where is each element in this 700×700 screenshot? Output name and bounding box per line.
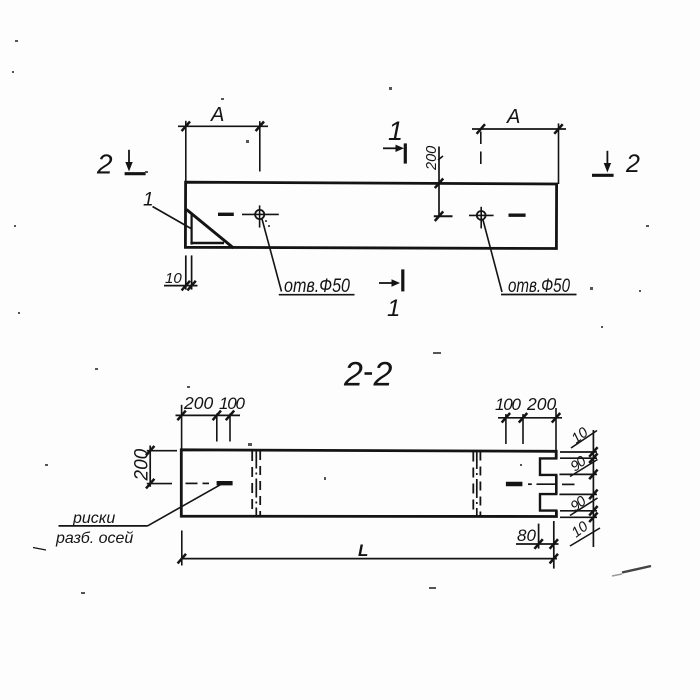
svg-text:200: 200 [183, 393, 213, 413]
svg-text:отв.Ф50: отв.Ф50 [508, 275, 570, 297]
svg-text:1: 1 [143, 190, 154, 211]
svg-text:A: A [210, 104, 224, 126]
svg-text:90: 90 [568, 493, 590, 515]
svg-text:2: 2 [96, 149, 113, 180]
svg-text:90: 90 [568, 453, 590, 475]
svg-text:1: 1 [387, 295, 400, 322]
svg-text:разб. осей: разб. осей [55, 530, 133, 547]
svg-text:отв.Ф50: отв.Ф50 [284, 275, 350, 297]
svg-text:2: 2 [625, 150, 640, 178]
svg-text:200: 200 [424, 146, 440, 171]
svg-text:риски: риски [72, 510, 115, 527]
svg-text:80: 80 [517, 526, 536, 545]
svg-text:200: 200 [526, 394, 556, 414]
svg-text:10: 10 [569, 425, 592, 447]
svg-text:200: 200 [132, 448, 153, 481]
svg-text:2: 2 [373, 356, 393, 394]
svg-text:L: L [358, 541, 368, 560]
svg-text:A: A [506, 106, 520, 128]
svg-text:100: 100 [495, 395, 522, 414]
svg-text:10: 10 [569, 519, 592, 541]
svg-text:10: 10 [165, 270, 182, 287]
svg-text:100: 100 [219, 394, 246, 413]
svg-text:2: 2 [343, 356, 363, 394]
svg-text:1: 1 [388, 116, 403, 146]
